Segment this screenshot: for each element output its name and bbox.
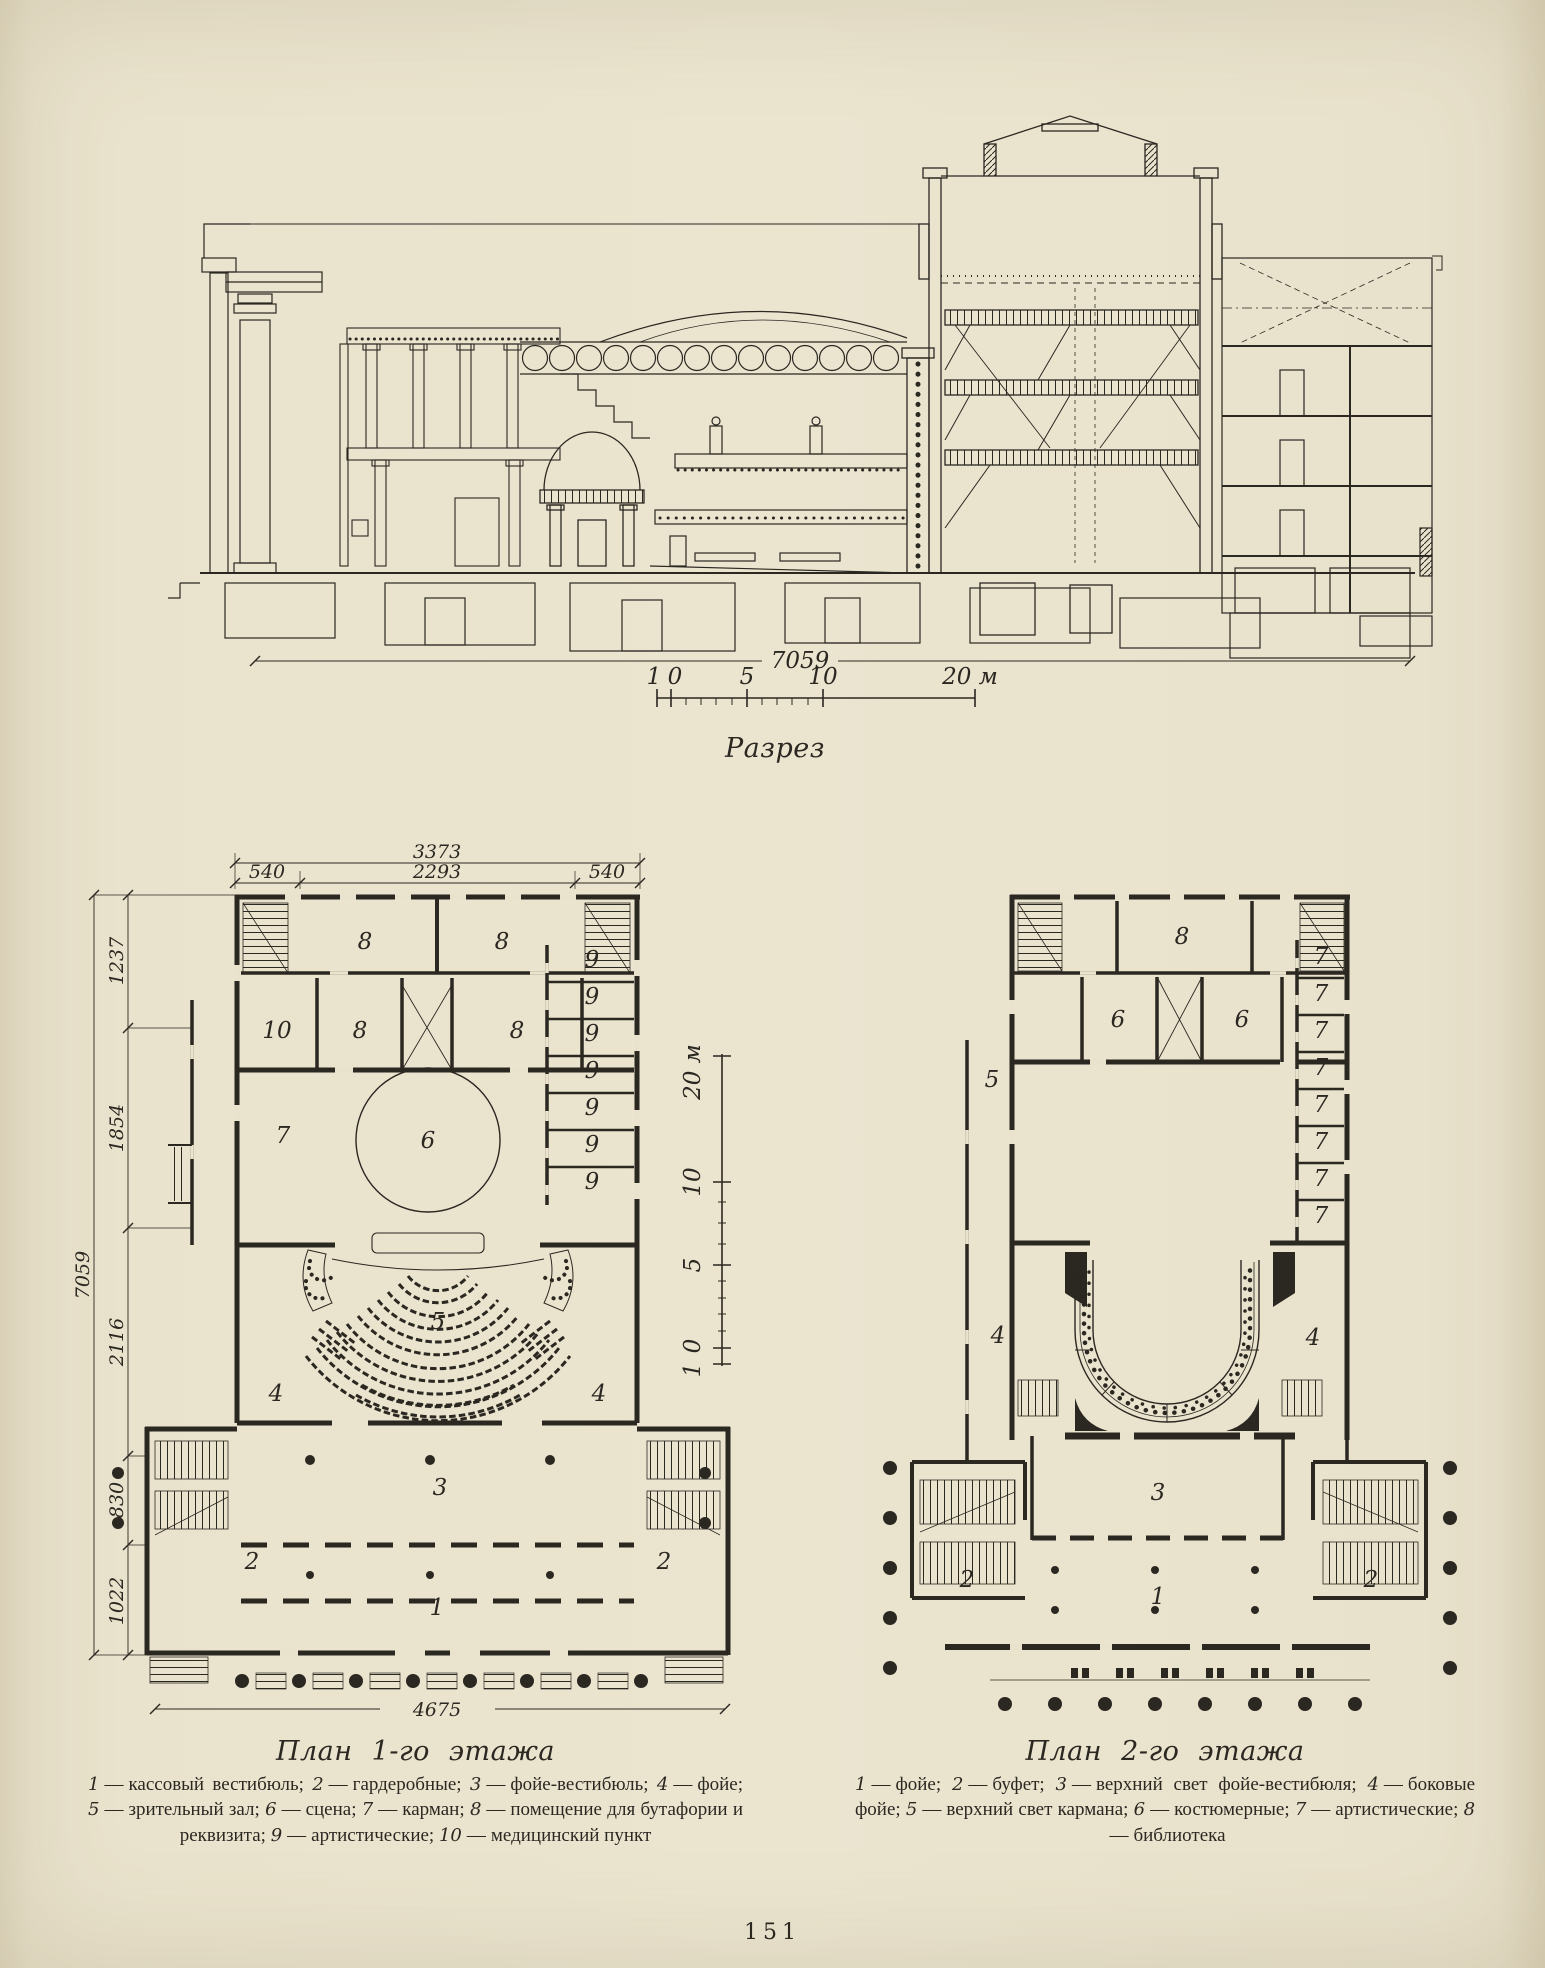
plan-2-drawing: 8 6 6 7 7 7 7 7 7 7 7 5 4 4 3 2 2 1 <box>850 880 1490 1715</box>
svg-text:9: 9 <box>585 1095 600 1121</box>
svg-text:7: 7 <box>1314 1166 1329 1192</box>
svg-text:4: 4 <box>990 1323 1006 1349</box>
svg-text:6: 6 <box>1235 1007 1250 1033</box>
svg-text:5: 5 <box>740 664 755 690</box>
plan2-legend: 1—фойе; 2—буфет; 3—верхний свет фойе-вес… <box>855 1772 1475 1848</box>
legend-item: 5—верхний свет кармана; <box>906 1799 1129 1820</box>
svg-text:8: 8 <box>495 929 510 955</box>
vestibule-dome <box>540 432 644 566</box>
svg-text:7: 7 <box>1314 944 1329 970</box>
svg-text:5: 5 <box>680 1258 706 1273</box>
svg-text:6: 6 <box>421 1128 436 1154</box>
svg-text:2: 2 <box>656 1549 672 1575</box>
left-portico <box>202 224 925 573</box>
legend-item: 10—медицинский пункт <box>439 1825 651 1846</box>
svg-text:540: 540 <box>589 861 625 883</box>
svg-text:0: 0 <box>680 1339 706 1354</box>
right-block <box>1222 256 1442 646</box>
svg-text:4: 4 <box>591 1381 607 1407</box>
svg-text:1: 1 <box>680 1363 706 1378</box>
svg-text:8: 8 <box>1175 924 1190 950</box>
svg-text:9: 9 <box>585 1021 600 1047</box>
svg-text:2116: 2116 <box>106 1318 128 1367</box>
legend-item: 5—зрительный зал; <box>88 1799 260 1820</box>
svg-text:3: 3 <box>1151 1480 1166 1506</box>
svg-text:10: 10 <box>262 1018 291 1044</box>
svg-text:10: 10 <box>680 1167 706 1196</box>
plan2-room-labels: 8 6 6 7 7 7 7 7 7 7 7 5 4 4 3 2 2 1 <box>959 924 1379 1610</box>
svg-text:2: 2 <box>244 1549 260 1575</box>
plan1-room-labels: 8 8 10 8 8 9 9 9 9 9 9 9 7 6 5 4 4 3 2 2… <box>244 929 672 1621</box>
svg-text:1: 1 <box>647 664 662 690</box>
plan1-left-dimensions: 1237 1854 2116 830 1022 7059 <box>72 890 235 1660</box>
scale-bar-horizontal: 1 0 5 10 20 м <box>647 664 998 707</box>
svg-text:2: 2 <box>1363 1567 1379 1593</box>
svg-text:5: 5 <box>431 1309 446 1335</box>
plan1-foyer-block <box>112 1427 730 1655</box>
section-caption: Разрез <box>600 733 950 764</box>
legend-item: 9—артистические; <box>271 1825 435 1846</box>
svg-text:7: 7 <box>276 1123 291 1149</box>
svg-text:9: 9 <box>585 984 600 1010</box>
plan2-caption: План 2-го этажа <box>850 1736 1480 1767</box>
plan2-foyer-block <box>912 1436 1426 1680</box>
plan1-top-dimensions: 3373 540 2293 540 <box>230 841 645 889</box>
legend-item: 2—гардеробные; <box>312 1774 461 1795</box>
svg-text:0: 0 <box>668 664 683 690</box>
scanned-book-page: 7059 1 0 5 10 20 м Разрез 3373 540 2293 … <box>0 0 1545 1968</box>
plan1-stage-house <box>168 895 640 1245</box>
svg-text:1854: 1854 <box>106 1104 128 1152</box>
svg-text:9: 9 <box>585 1058 600 1084</box>
svg-text:9: 9 <box>585 1169 600 1195</box>
legend-item: 6—сцена; <box>265 1799 356 1820</box>
plan2-balcony-horseshoe <box>1012 1243 1347 1440</box>
svg-text:1: 1 <box>430 1595 445 1621</box>
svg-text:9: 9 <box>585 947 600 973</box>
svg-text:7: 7 <box>1314 1092 1329 1118</box>
svg-text:8: 8 <box>353 1018 368 1044</box>
svg-text:8: 8 <box>510 1018 525 1044</box>
vertical-scale-bar: 20 м 10 5 0 1 <box>650 1030 760 1390</box>
legend-item: 1—кассовый вестибюль; <box>88 1774 304 1795</box>
svg-text:4: 4 <box>268 1381 284 1407</box>
page-number: 151 <box>0 1920 1545 1945</box>
plan1-legend: 1—кассовый вестибюль; 2—гардеробные; 3—ф… <box>88 1772 743 1848</box>
plan-1-drawing: 3373 540 2293 540 1237 1854 2116 830 102… <box>80 845 740 1725</box>
svg-text:6: 6 <box>1111 1007 1126 1033</box>
interior-columns <box>305 1455 555 1579</box>
svg-text:2: 2 <box>959 1567 975 1593</box>
svg-text:7: 7 <box>1314 1018 1329 1044</box>
plan1-bottom-colonnade: 4675 <box>150 1657 730 1721</box>
legend-item: 3—верхний свет фойе-вестибюля; <box>1056 1774 1357 1795</box>
svg-text:5: 5 <box>985 1067 1000 1093</box>
legend-item: 2—буфет; <box>952 1774 1045 1795</box>
fly-tower <box>919 116 1222 635</box>
svg-text:3: 3 <box>433 1475 448 1501</box>
svg-text:4: 4 <box>1305 1325 1321 1351</box>
svg-text:1022: 1022 <box>106 1577 128 1625</box>
legend-item: 3—фойе-вестибюль; <box>470 1774 649 1795</box>
legend-item: 4—фойе; <box>657 1774 743 1795</box>
svg-text:9: 9 <box>585 1132 600 1158</box>
svg-text:830: 830 <box>106 1482 128 1518</box>
plan1-bottom-dim: 4675 <box>412 1699 461 1721</box>
legend-item: 1—фойе; <box>855 1774 941 1795</box>
seating-fan <box>306 1276 570 1421</box>
legend-item: 7—артистические; <box>1295 1799 1459 1820</box>
svg-text:8: 8 <box>358 929 373 955</box>
svg-text:7059: 7059 <box>72 1251 94 1299</box>
svg-text:7: 7 <box>1314 981 1329 1007</box>
section-drawing: 7059 1 0 5 10 20 м <box>170 58 1435 723</box>
svg-text:7: 7 <box>1314 1203 1329 1229</box>
colonnade-block <box>340 328 560 566</box>
svg-text:1237: 1237 <box>106 936 128 985</box>
svg-text:10: 10 <box>808 664 837 690</box>
plan1-caption: План 1-го этажа <box>88 1736 743 1767</box>
legend-item: 7—карман; <box>362 1799 465 1820</box>
svg-text:3373: 3373 <box>413 841 461 863</box>
svg-text:7: 7 <box>1314 1055 1329 1081</box>
legend-item: 6—костюмерные; <box>1134 1799 1290 1820</box>
plan2-stage-house <box>967 895 1350 1460</box>
svg-text:540: 540 <box>249 861 285 883</box>
svg-text:20 м: 20 м <box>941 664 998 690</box>
svg-text:2293: 2293 <box>412 861 461 883</box>
basement <box>168 573 1415 658</box>
svg-text:20 м: 20 м <box>680 1044 706 1101</box>
svg-text:7: 7 <box>1314 1129 1329 1155</box>
svg-text:1: 1 <box>1151 1584 1166 1610</box>
